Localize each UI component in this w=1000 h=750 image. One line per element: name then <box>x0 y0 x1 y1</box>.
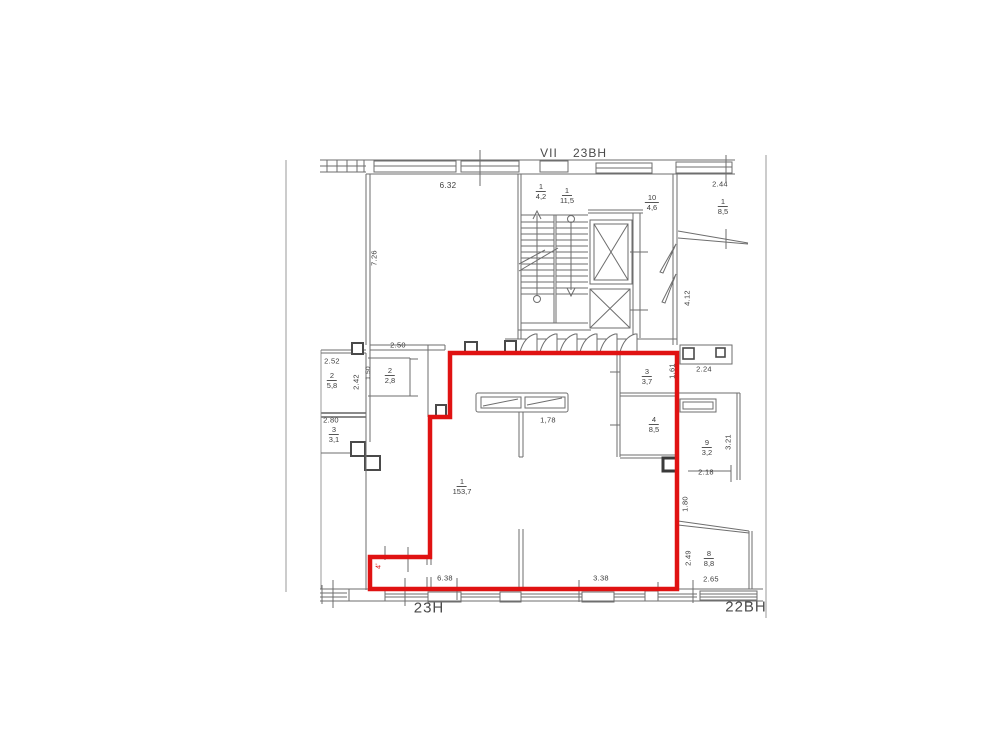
right-corridor-wall <box>660 174 677 345</box>
top-right-room <box>678 229 748 249</box>
room-632-walls <box>366 174 521 353</box>
staircase <box>518 211 591 330</box>
louver-fins <box>505 334 637 352</box>
boundary-lines <box>286 155 766 618</box>
elevator-shafts <box>505 210 677 339</box>
right-side-rooms <box>677 345 752 589</box>
left-strip-walls <box>321 343 428 590</box>
stair-up-arrow <box>533 211 541 296</box>
floorplan-drawing <box>0 0 1000 750</box>
floorplan-canvas: VII 23ВН 23Н 22ВН 6.327.262.442.502.522.… <box>0 0 1000 750</box>
bottom-exterior-wall <box>320 578 763 608</box>
